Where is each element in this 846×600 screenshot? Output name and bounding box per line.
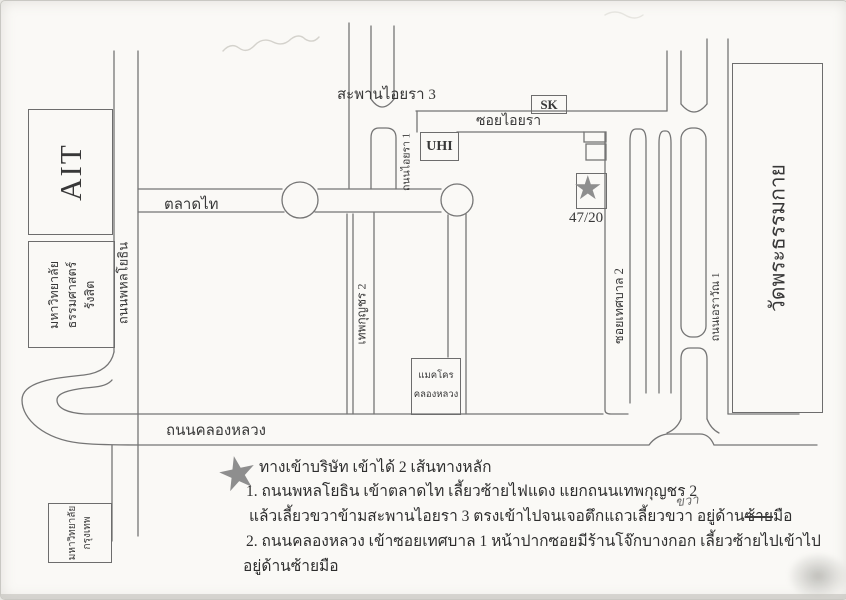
road-label-thanon-erawan-1: ถนนเอราวัณ 1 [706,273,724,342]
company-marker-box: ★ [576,173,607,209]
shophouse-buildings [584,132,606,160]
makro-label-line2: คลองหลวง [414,387,459,407]
road-label-khlong-luang: ถนนคลองหลวง [166,418,266,442]
bangkok-university-label-line1: มหาวิทยาลัย [65,506,80,560]
legend-step1: 1. ถนนพหลโยธิน เข้าตลาดไท เลี้ยวซ้ายไฟแด… [246,478,697,503]
road-north-cluster [667,39,728,414]
road-label-thepkunchorn-2: เทพกุญชร 2 [353,283,372,344]
legend-title: ทางเข้าบริษัท เข้าได้ 2 เส้นทางหลัก [259,454,491,479]
road-label-soi-aiyara: ซอยไอยรา [476,110,541,132]
wat-phra-dhammakaya-label: วัดพระธรรมกาย [761,164,794,312]
roundabout-east [441,184,473,216]
company-house-number: 47/20 [569,210,603,227]
legend-step1-cont-prefix: แล้วเลี้ยวขวาข้ามสะพานไอยรา 3 ตรงเข้าไปจ… [249,508,745,525]
makro-label-line1: แมคโคร [414,367,459,387]
road-label-saphan-aiyara-3: สะพานไอยรา 3 [337,82,436,106]
thammasat-label-line1: มหาวิทยาลัย [44,260,62,328]
uhi-box: UHI [420,132,459,161]
road-soi-aiyara [416,111,667,132]
makro-box: แมคโคร คลองหลวง [411,358,461,415]
handwritten-correction: ขวา [674,489,700,513]
legend-step2: 2. ถนนคลองหลวง เข้าซอยเทศบาล 1 หน้าปากซอ… [246,528,821,553]
scan-smudge [787,552,846,600]
roundabout-talad-thai [282,182,318,218]
ait-box: AIT [28,109,113,235]
pencil-scribble [223,12,643,51]
road-saphan-aiyara-3 [349,23,396,189]
ait-label: AIT [53,143,89,201]
legend-step1-cont-suffix: มือ [773,508,793,525]
thammasat-label-line2: ธรรมศาสตร์ [62,260,80,328]
uhi-label: UHI [426,139,452,155]
scan-edge-strip [1,594,846,599]
road-label-soi-thesaban-2: ซอยเทศบาล 2 [609,268,629,344]
wat-phra-dhammakaya-box: วัดพระธรรมกาย [732,63,823,413]
legend-struck-word: ซ้าย [745,508,773,525]
legend-step2-continued: อยู่ด้านซ้ายมือ [243,553,339,578]
road-label-thanon-aiyara-1: ถนนไอยรา 1 [398,133,415,191]
bangkok-university-box: มหาวิทยาลัย กรุงเทพ [48,503,112,563]
bangkok-university-label-line2: กรุงเทพ [80,506,95,560]
thammasat-university-box: มหาวิทยาลัย ธรรมศาสตร์ รังสิต [28,241,115,348]
scanned-direction-map: AIT มหาวิทยาลัย ธรรมศาสตร์ รังสิต มหาวิท… [0,0,846,600]
road-label-talad-thai: ตลาดไท [164,192,219,216]
sk-label: SK [540,97,557,113]
legend-step1-continued: แล้วเลี้ยวขวาข้ามสะพานไอยรา 3 ตรงเข้าไปจ… [249,503,792,528]
road-label-phahonyothin: ถนนพหลโยธิน [113,242,134,324]
thammasat-label-line3: รังสิต [81,260,99,328]
company-star-icon: ★ [573,173,603,206]
